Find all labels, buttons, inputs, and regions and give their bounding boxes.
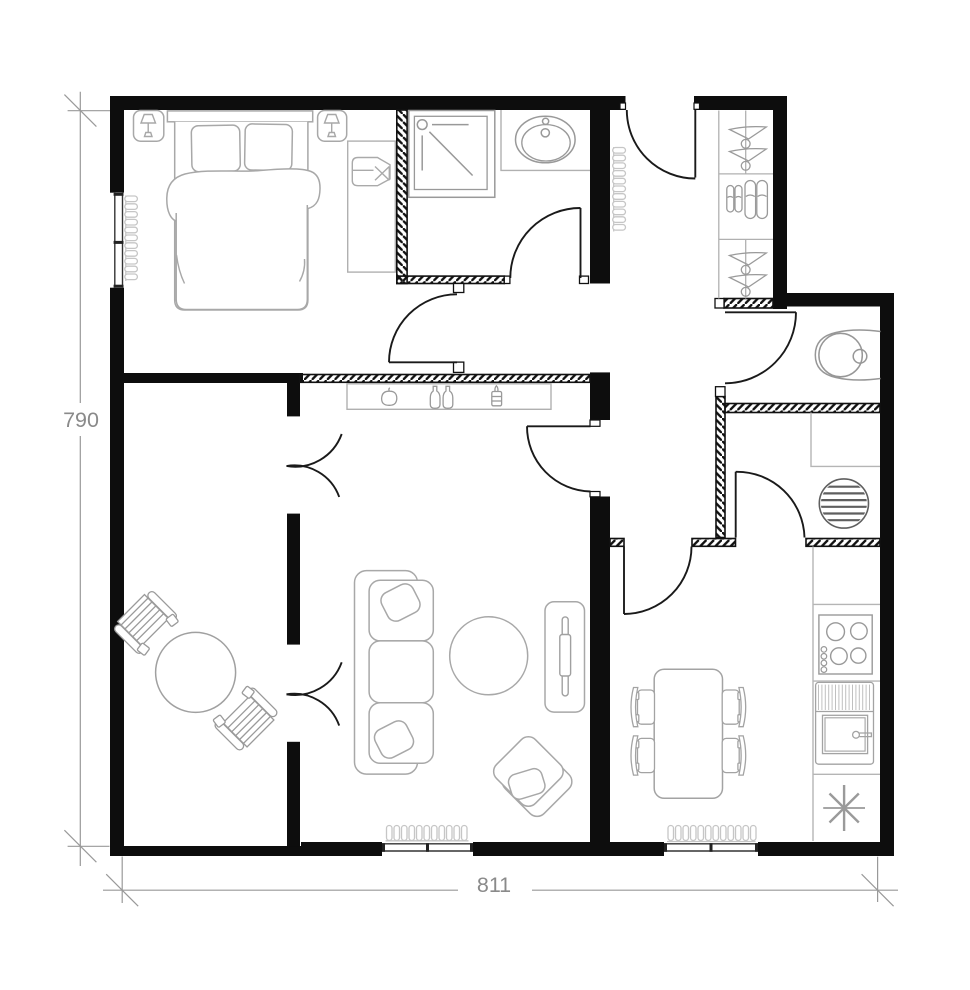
svg-text:790: 790 — [63, 408, 99, 432]
svg-text:811: 811 — [477, 873, 511, 897]
